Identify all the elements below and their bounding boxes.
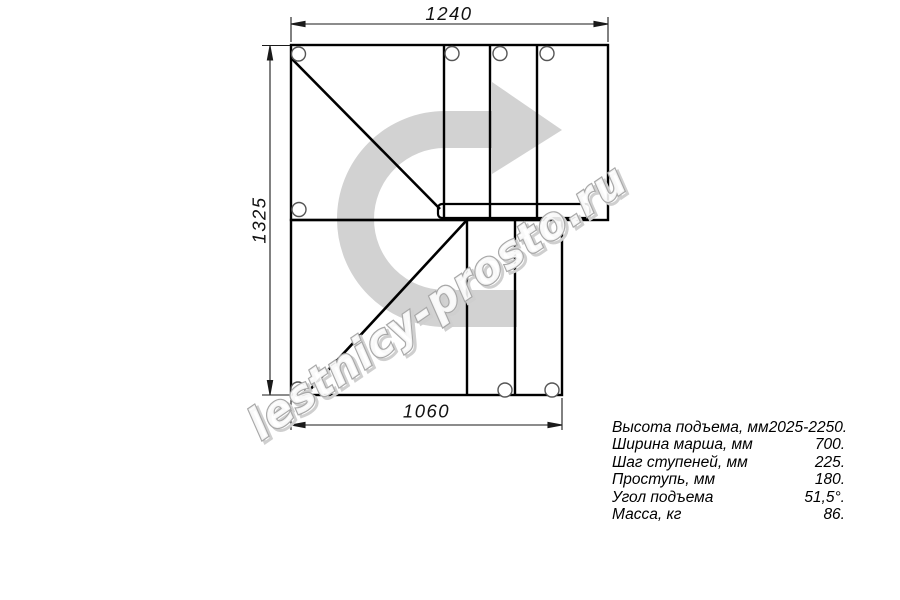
spec-value: 700. [815, 436, 845, 453]
spec-row-flight-width: Ширина марша, мм 700. [612, 436, 845, 453]
spec-row-mass: Масса, кг 86. [612, 506, 845, 523]
spec-row-rise-angle: Угол подъема 51,5°. [612, 489, 845, 506]
hole [445, 47, 459, 61]
hole [498, 383, 512, 397]
dim-value-bottom: 1060 [403, 401, 450, 422]
dimension-top-width: 1240 [291, 3, 608, 42]
spec-row-lift-height: Высота подъема, мм 2025-2250. [612, 419, 845, 436]
dim-arrow-right [594, 21, 608, 26]
dim-arrow-left [291, 21, 305, 26]
dim-arrow-top [267, 46, 272, 60]
spec-label: Ширина марша, мм [612, 436, 753, 453]
specs-table: Высота подъема, мм 2025-2250. Ширина мар… [612, 419, 845, 523]
dimension-left-height: 1325 [249, 46, 291, 396]
hole [493, 47, 507, 61]
spec-value: 2025-2250. [769, 419, 847, 436]
hole [292, 47, 306, 61]
dim-arrow-right [548, 422, 562, 427]
spec-value: 51,5°. [804, 489, 845, 506]
spec-label: Проступь, мм [612, 471, 715, 488]
spec-label: Угол подъема [612, 489, 713, 506]
spec-value: 180. [815, 471, 845, 488]
hole [540, 47, 554, 61]
hole [545, 383, 559, 397]
spec-label: Шаг ступеней, мм [612, 454, 748, 471]
drawing-canvas: 1240 1325 1060 lestnicy-prosto.ru lestni… [0, 0, 900, 600]
dim-value-top: 1240 [425, 3, 472, 24]
direction-arrow-head [492, 82, 562, 174]
spec-label: Высота подъема, мм [612, 419, 769, 436]
dim-value-left: 1325 [249, 196, 270, 243]
hole [292, 203, 306, 217]
spec-label: Масса, кг [612, 506, 681, 523]
spec-value: 86. [823, 506, 845, 523]
spec-value: 225. [815, 454, 845, 471]
spec-row-tread: Проступь, мм 180. [612, 471, 845, 488]
spec-row-step-pitch: Шаг ступеней, мм 225. [612, 454, 845, 471]
